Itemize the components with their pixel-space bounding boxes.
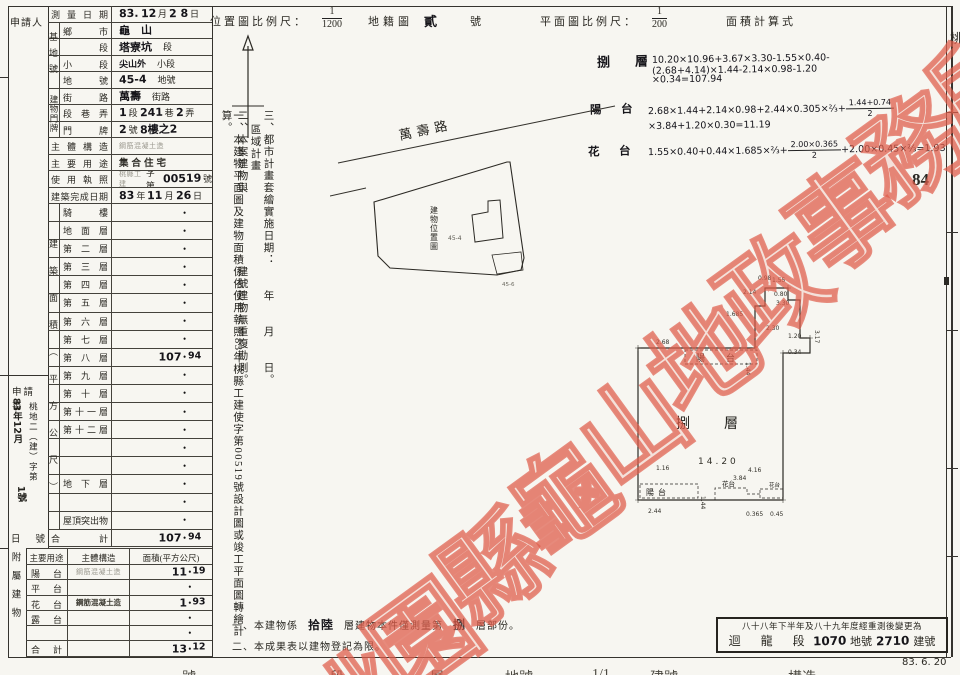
calc-floor-label: 捌 層: [597, 50, 654, 70]
location-scale-label: 位置圖比例尺：: [210, 13, 308, 29]
floor-row: 地下層•: [48, 475, 212, 493]
decimal-dot: •: [183, 533, 186, 543]
dimension-label: 2.68: [656, 339, 670, 346]
note-segment: 層部份。: [476, 621, 520, 632]
floor-area-value: •10794: [112, 349, 212, 366]
calc-flower-pre: 1.55×0.40+0.44×1.685×⅔+: [648, 145, 788, 158]
doc-number-prefix: 桃地二（建）字第: [28, 402, 37, 552]
decimal-dot: •: [183, 443, 186, 453]
attached-use-label: 露 台: [26, 611, 68, 625]
vertical-note: 區域計畫: [249, 124, 261, 194]
row-label: 地 號: [60, 72, 112, 88]
floor-label: 第九層: [60, 367, 112, 384]
clipped-text-fragment: 層: [430, 667, 444, 675]
fold-tick: [0, 77, 8, 78]
row-value: 尖山外 小段: [112, 56, 212, 72]
fraction-denominator: 2: [846, 109, 894, 119]
attached-header-cell: 主要用途: [26, 549, 68, 564]
decimal-dot: •: [183, 334, 186, 344]
decimal-dot: •: [183, 515, 186, 525]
value-segment: 45-4: [119, 73, 147, 87]
location-map: 萬壽路 建物位置圖 45-4 45-6: [330, 88, 620, 343]
calc-balcony-fraction: 1.44+0.742: [846, 99, 895, 119]
area-integer: 1: [179, 596, 187, 609]
attached-use-label: 平 台: [26, 580, 68, 594]
floor-label: 第五層: [60, 294, 112, 311]
fraction-denominator: 2: [788, 150, 842, 160]
floor-row: 第五層•: [48, 294, 212, 312]
value-segment: 巷: [165, 106, 174, 119]
calc-flower-post: +2.00×0.45×⅔=1.93: [841, 143, 946, 155]
value-segment: 號: [203, 172, 212, 185]
floor-row: 第十二層•: [48, 421, 212, 439]
structure-stamp: 鋼筋混凝土造: [76, 567, 121, 577]
table-row: 主要用途集合住宅: [48, 155, 212, 172]
attached-use-label: 陽 台: [26, 565, 68, 579]
doc-number-handwritten: 83年12月: [10, 398, 23, 478]
decimal-dot: •: [183, 280, 186, 290]
note-segment: 一、本建物係: [232, 621, 298, 632]
dimension-label: 0.365: [746, 511, 763, 518]
row-value: 萬壽 街路: [112, 89, 212, 105]
area-decimal: 94: [188, 531, 201, 542]
table-row: 使用執照桃縣工建字第00519號: [48, 171, 212, 188]
edge-tick: [946, 232, 958, 233]
value-segment: 1: [119, 106, 127, 119]
value-segment: 街路: [143, 90, 170, 103]
value-segment: 號: [129, 123, 138, 136]
attached-use-label: 合 計: [26, 641, 68, 655]
dimension-label: 2.44: [648, 508, 662, 515]
total-value: •10794: [112, 530, 212, 547]
area-integer: 107: [159, 531, 182, 544]
floor-label: 地下層: [60, 475, 112, 492]
lot-number-label: 45-4: [448, 235, 462, 242]
edge-tick: [946, 330, 958, 331]
clipped-text-fragment: 號: [182, 667, 196, 675]
note-segment: 層建物本件僅測量第: [344, 621, 443, 632]
attached-area-value: •: [130, 580, 212, 594]
table-row: 段塔寮坑 段: [48, 39, 212, 56]
floor-area-value: •: [112, 276, 212, 293]
value-segment: 日: [193, 189, 202, 202]
right-border-outer: [951, 6, 953, 657]
row-label: 主體構造: [48, 138, 112, 154]
location-scale-fraction: 1 1200: [322, 7, 342, 30]
row-label: 主要用途: [48, 155, 112, 171]
clipped-text-fragment: 段: [330, 667, 344, 675]
fold-tick: [0, 548, 8, 549]
plan-scale-fraction: 1 200: [652, 7, 667, 30]
area-integer: 11: [172, 566, 187, 579]
floor-label: 地面層: [60, 222, 112, 239]
value-segment: 8樓之2: [139, 122, 177, 138]
dimension-label: 3.84: [733, 475, 747, 482]
floor-area-value: •: [112, 204, 212, 221]
table-row: 主體構造鋼筋混凝土造: [48, 138, 212, 155]
value-segment: 月: [165, 189, 174, 202]
floor-area-value: •: [112, 258, 212, 275]
stamp-lot-number: 1070: [812, 634, 846, 649]
group-label-door: 建物門牌: [48, 90, 60, 138]
attached-building-label: 附屬建物: [9, 552, 19, 655]
total-label: 合 計: [48, 530, 112, 547]
lot-number-label-2: 45-6: [502, 282, 515, 288]
floor-label: [60, 494, 112, 511]
floor-row: •: [48, 457, 212, 475]
attached-row: 露 台•: [26, 611, 212, 626]
table-row: 建築完成日期83年11月26日: [48, 188, 212, 205]
attached-structure: 鋼筋混凝土造: [68, 596, 130, 610]
floor-row: •: [48, 494, 212, 512]
total-row-wrap: 合 計•10794: [48, 530, 212, 548]
cadastral-map-label: 地籍圖: [368, 13, 413, 29]
row-value: 1段241巷2弄: [112, 105, 212, 121]
attached-row: 陽 台鋼筋混凝土造•1119: [26, 565, 212, 580]
floor-label: 第六層: [60, 313, 112, 330]
attached-area-value: •1312: [130, 641, 212, 655]
cadastral-sheet-number: 貳: [424, 11, 438, 30]
bottom-balcony-label: 陽台: [646, 487, 670, 497]
applicant-label: 申請人: [10, 14, 46, 29]
dimension-labels: 2.681.442.140.981.550.801.6853.302.301.2…: [648, 275, 820, 518]
table-row: 地 號45-4 地號: [48, 72, 212, 89]
resurvey-stamp-box: 八十八年下半年及八十九年度經重測後變更為 迴 龍 段 1070 地號 2710 …: [716, 617, 948, 653]
floor-label: 第八層: [60, 349, 112, 366]
decimal-dot: •: [183, 461, 186, 471]
value-segment: 集合住宅: [119, 155, 169, 169]
fraction-numerator: 1: [322, 7, 342, 19]
dimension-label: 0.98: [758, 275, 772, 282]
attached-row: •: [26, 626, 212, 641]
floor-area-value: •: [112, 475, 212, 492]
floor-plan: 捌 層 陽 台 陽台 花台 花台 2.681.442.140.981.550.8…: [600, 258, 850, 558]
attached-area-value: •1119: [130, 565, 212, 579]
vertical-note: 一、本建物平面圖及建物面積係依使用執照83年桃縣工建使字第00519號設計圖或竣…: [220, 110, 243, 658]
row-value: 塔寮坑 段: [112, 39, 212, 55]
floor-area-value: •: [112, 512, 212, 529]
attached-row: 平 台•: [26, 580, 212, 595]
floor-row: •: [48, 439, 212, 457]
row-label: 段: [60, 39, 112, 55]
calc-balcony-post: ×3.84+1.20×0.30=11.19: [648, 119, 771, 132]
decimal-dot: •: [183, 262, 186, 272]
floor-area-value: •: [112, 331, 212, 348]
floor-row: 第三層•: [48, 258, 212, 276]
value-segment: 11: [147, 189, 163, 202]
floor-row: 第六層•: [48, 313, 212, 331]
table-row: 小 段尖山外 小段: [48, 56, 212, 73]
value-segment: 弄: [185, 106, 194, 119]
fraction-numerator: 1: [652, 7, 667, 19]
decimal-dot: •: [183, 407, 186, 417]
decimal-dot: •: [188, 582, 191, 592]
doc-number-handwritten-2: 1號: [15, 486, 26, 524]
row-label: 街 路: [60, 89, 112, 105]
vertical-note: 三、都市計畫套繪實施日期： 年 月 日。: [262, 110, 274, 430]
calc-flower-fraction: 2.00×0.3652: [788, 140, 842, 160]
row-label: 鄉 市: [60, 23, 112, 39]
attached-header-cell: 面積(平方公尺): [130, 549, 212, 564]
fraction-denominator: 200: [652, 19, 667, 30]
dimension-label: 2.14: [743, 289, 757, 296]
clipped-text-fragment: 地號: [505, 667, 533, 675]
day-number-label: 日 號: [11, 531, 45, 545]
attached-structure: [68, 641, 130, 655]
fraction-numerator: 1.44+0.74: [846, 99, 894, 110]
watermark-char: 園: [332, 540, 505, 675]
attached-row: 合 計•1312: [26, 641, 212, 656]
table-row: 鄉 市龜 山: [48, 23, 212, 40]
road-label: 萬壽路: [398, 117, 454, 144]
dimension-label: 1.44: [744, 362, 751, 376]
value-segment: 地號: [149, 73, 176, 86]
attached-area-value: •: [130, 626, 212, 640]
dimension-label: 1.20: [788, 333, 802, 340]
value-segment: 12: [140, 7, 156, 20]
value-segment: 塔寮坑: [119, 39, 152, 55]
floor-area-value: •: [112, 457, 212, 474]
attached-area-value: •193: [130, 596, 212, 610]
decimal-dot: •: [188, 613, 191, 623]
table-row: 門 牌2號8樓之2: [48, 122, 212, 139]
attached-use-label: 花 台: [26, 596, 68, 610]
floor-row: 第四層•: [48, 276, 212, 294]
map-building-label: 建物位置圖: [430, 205, 439, 251]
floor-label: 騎樓: [60, 204, 112, 221]
floor-area-value: •: [112, 439, 212, 456]
floor-label: 屋頂突出物: [60, 512, 112, 529]
plan-scale-label: 平面圖比例尺：: [540, 13, 638, 29]
floor-row: 第七層•: [48, 331, 212, 349]
table-right-border: [212, 6, 213, 657]
floor-row: 屋頂突出物•: [48, 512, 212, 530]
floor-row: 第十一層•: [48, 403, 212, 421]
floor-label: 第十二層: [60, 421, 112, 438]
value-segment: 桃縣工建: [119, 171, 144, 187]
bottom-border: [8, 657, 951, 658]
floor-row: 第十層•: [48, 385, 212, 403]
decimal-dot: •: [188, 628, 191, 638]
building-footprint: [472, 200, 503, 242]
attached-structure: [68, 626, 130, 640]
group-label-area: 建築面積（平方公尺）: [48, 216, 60, 532]
value-segment: 段: [154, 40, 172, 53]
floor-area-value: •: [112, 385, 212, 402]
note-segment: 捌: [453, 616, 466, 633]
value-segment: 萬壽: [119, 89, 141, 105]
floor-area-value: •: [112, 313, 212, 330]
value-segment: 26: [175, 189, 191, 202]
row-label: 測量日期: [48, 6, 112, 22]
dimension-label: 4.16: [748, 467, 762, 474]
clipped-text-fragment: 構造: [788, 667, 816, 675]
row-value: 83.12月2 8日: [112, 6, 212, 22]
value-segment: 龜 山: [119, 23, 152, 39]
attached-buildings-table: 主要用途主體構造面積(平方公尺)陽 台鋼筋混凝土造•1119平 台•花 台鋼筋混…: [26, 548, 212, 657]
decimal-dot: •: [183, 208, 186, 218]
value-segment: 日: [190, 7, 199, 20]
floor-area-value: •: [112, 403, 212, 420]
row-value: 桃縣工建字第00519號: [112, 171, 212, 187]
value-segment: 2: [175, 106, 183, 119]
floor-area-value: •: [112, 222, 212, 239]
top-balcony-label: 陽 台: [696, 352, 741, 364]
attached-header-cell: 主體構造: [68, 549, 130, 564]
page-number: 84: [912, 170, 929, 190]
stamp-section-name: 迴 龍 段: [729, 632, 809, 649]
clipped-text-fragment: 建號: [650, 667, 678, 675]
sheet-number-suffix: 號: [470, 13, 481, 29]
calc-balcony-line: 2.68×1.44+2.14×0.98+2.44×0.305×⅔+1.44+0.…: [648, 98, 948, 132]
value-segment: 字第: [146, 171, 161, 187]
floor-label: [60, 457, 112, 474]
stamp-building-number: 2710: [876, 634, 910, 649]
stamp-line-2: 迴 龍 段 1070 地號 2710 建號: [718, 632, 946, 649]
row-value: 2號8樓之2: [112, 122, 212, 138]
dimension-label: 1.685: [726, 311, 743, 318]
decimal-dot: •: [183, 298, 186, 308]
value-segment: 83: [119, 189, 135, 202]
survey-form-page: 申請人 申請書 桃地二（建）字第 83年12月 1號 日 號 附屬建物 測量日期…: [0, 0, 960, 675]
date-code: 83. 6. 20: [902, 657, 947, 668]
calc-flower-line: 1.55×0.40+0.44×1.685×⅔+2.00×0.3652+2.00×…: [648, 139, 948, 162]
value-segment: 小段: [148, 57, 175, 70]
table-row: 測量日期83.12月2 8日: [48, 6, 212, 23]
stamp-line-1: 八十八年下半年及八十九年度經重測後變更為: [718, 619, 946, 632]
row-value: 45-4 地號: [112, 72, 212, 88]
dimension-label: 0.80: [774, 291, 788, 298]
building-info-table: 測量日期83.12月2 8日鄉 市龜 山 段塔寮坑 段小 段尖山外 小段地 號4…: [48, 6, 212, 547]
bottom-note-1: 一、本建物係拾陸層建物本件僅測量第捌層部份。: [232, 616, 520, 633]
dimension-label: 3.17: [813, 330, 820, 344]
floor-rows: 騎樓•地面層•第二層•第三層•第四層•第五層•第六層•第七層•第八層•10794…: [48, 204, 212, 530]
header-rows: 測量日期83.12月2 8日鄉 市龜 山 段塔寮坑 段小 段尖山外 小段地 號4…: [48, 6, 212, 204]
area-decimal: 93: [192, 596, 205, 607]
fold-tick: [0, 375, 8, 376]
row-label: 小 段: [60, 56, 112, 72]
stamp-lot-suffix: 地號: [850, 633, 872, 649]
decimal-dot: •: [188, 644, 191, 654]
sub-parcel: [492, 252, 523, 274]
flower-label-2: 花台: [769, 481, 781, 489]
value-segment: 2: [119, 123, 127, 136]
decimal-dot: •: [183, 425, 186, 435]
attached-structure: 鋼筋混凝土造: [68, 565, 130, 579]
table-row: 段巷弄1段241巷2弄: [48, 105, 212, 122]
application-box-line: [8, 375, 48, 376]
dimension-label: 3.30: [776, 300, 790, 307]
floor-area-value: •: [112, 421, 212, 438]
edge-tick: [946, 556, 958, 557]
binding-mark: [944, 277, 949, 285]
value-segment: 83.: [119, 7, 139, 21]
attached-area-value: •: [130, 611, 212, 625]
value-segment: 鋼筋混凝土造: [119, 141, 164, 151]
attached-header-row: 主要用途主體構造面積(平方公尺): [26, 548, 212, 565]
attached-row: 花 台鋼筋混凝土造•193: [26, 596, 212, 611]
area-integer: 107: [159, 351, 182, 364]
floor-label: 第十一層: [60, 403, 112, 420]
floor-area-value: •: [112, 494, 212, 511]
attached-structure: [68, 611, 130, 625]
floor-plan-main-label: 捌 層: [676, 416, 748, 432]
flower-box-steps: [715, 488, 760, 500]
floor-row: 第二層•: [48, 240, 212, 258]
floor-area-value: •: [112, 367, 212, 384]
decimal-dot: •: [183, 352, 186, 362]
dimension-label: 2.30: [766, 325, 780, 332]
dimension-label: 1.44: [699, 496, 706, 510]
decimal-dot: •: [183, 370, 186, 380]
fraction-denominator: 1200: [322, 19, 342, 30]
decimal-dot: •: [183, 226, 186, 236]
floor-label: 第十層: [60, 385, 112, 402]
value-segment: 00519: [163, 172, 202, 186]
row-label: 建築完成日期: [48, 188, 112, 204]
value-segment: 2 8: [169, 7, 188, 20]
clipped-text-fragment: 1/1: [592, 667, 610, 675]
structure-stamp: 鋼筋混凝土造: [76, 597, 121, 608]
group-label-site: 基地號: [48, 24, 60, 88]
dimension-label: 1.55: [772, 277, 786, 284]
floor-label: 第三層: [60, 258, 112, 275]
decimal-dot: •: [183, 497, 186, 507]
row-value: 龜 山: [112, 23, 212, 39]
decimal-dot: •: [183, 479, 186, 489]
floor-label: [60, 439, 112, 456]
value-segment: 月: [158, 7, 167, 20]
decimal-dot: •: [188, 567, 191, 577]
row-value: 83年11月26日: [112, 188, 212, 204]
dimension-label: 0.45: [770, 511, 784, 518]
dimension-label: 1.16: [656, 465, 670, 472]
area-integer: 13: [172, 642, 187, 655]
floor-row: 地面層•: [48, 222, 212, 240]
dimension-label: 14.20: [698, 457, 739, 467]
value-segment: 尖山外: [119, 56, 146, 70]
floor-row: 第八層•10794: [48, 349, 212, 367]
total-row: 合 計•10794: [48, 530, 212, 548]
table-row: 街 路萬壽 街路: [48, 89, 212, 106]
calc-balcony-pre: 2.68×1.44+2.14×0.98+2.44×0.305×⅔+: [648, 103, 846, 117]
area-decimal: 19: [192, 566, 205, 577]
floor-label: 第四層: [60, 276, 112, 293]
row-label: 門 牌: [60, 122, 112, 138]
floor-area-value: •: [112, 240, 212, 257]
row-value: 鋼筋混凝土造: [112, 138, 212, 154]
corner-box: [760, 489, 783, 498]
attached-use-label: [26, 626, 68, 640]
decimal-dot: •: [188, 598, 191, 608]
floor-row: 騎樓•: [48, 204, 212, 222]
attached-structure: [68, 580, 130, 594]
edge-clipped-char: 桃: [950, 28, 960, 47]
decimal-dot: •: [183, 388, 186, 398]
bottom-note-2: 二、本成果表以建物登記為限。: [232, 638, 386, 653]
decimal-dot: •: [183, 316, 186, 326]
value-segment: 241: [140, 106, 163, 120]
decimal-dot: •: [183, 244, 186, 254]
edge-tick: [946, 468, 958, 469]
calc-floor-line2: ×0.34=107.94: [652, 74, 722, 86]
floor-area-value: •: [112, 294, 212, 311]
note-segment: 拾陸: [308, 616, 334, 634]
floor-label: 第二層: [60, 240, 112, 257]
row-label: 使用執照: [48, 171, 112, 187]
row-value: 集合住宅: [112, 155, 212, 171]
area-decimal: 94: [188, 350, 201, 361]
